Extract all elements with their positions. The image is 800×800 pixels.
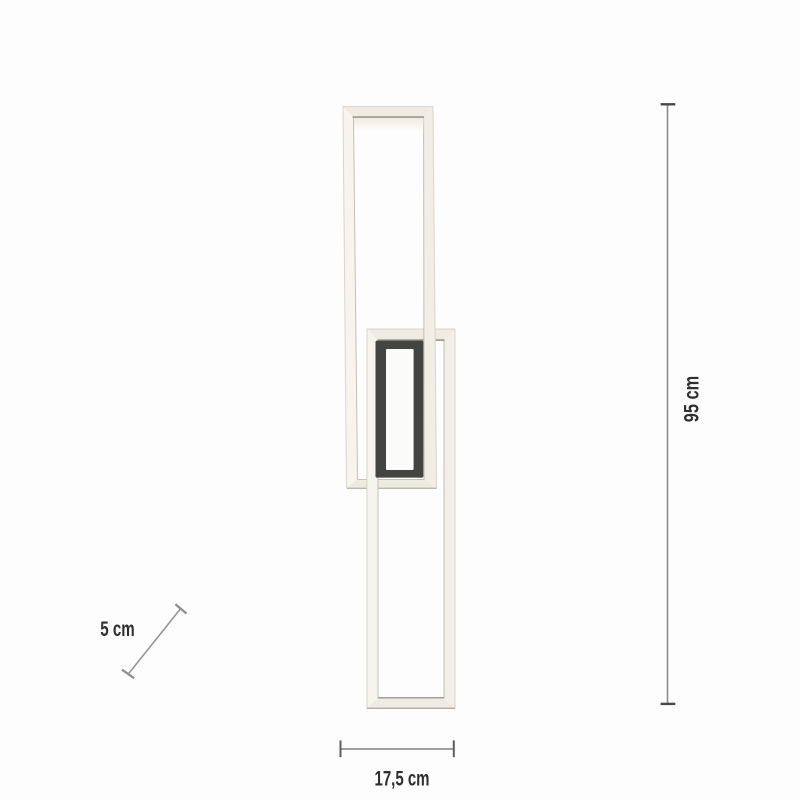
svg-text:17,5 cm: 17,5 cm (375, 766, 430, 790)
svg-text:5 cm: 5 cm (100, 617, 135, 641)
svg-text:95 cm: 95 cm (680, 376, 704, 423)
